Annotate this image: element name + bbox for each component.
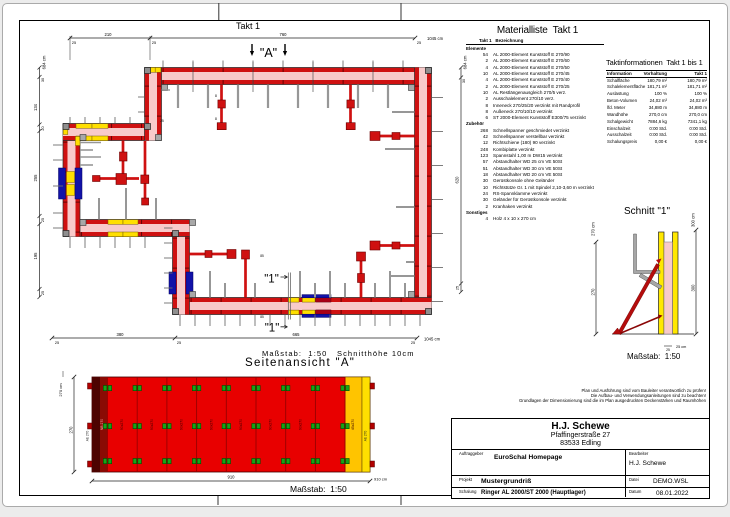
svg-text:195: 195 [33,252,38,260]
svg-text:255: 255 [33,174,38,182]
svg-text:25: 25 [152,41,156,45]
svg-text:90x270: 90x270 [298,419,302,430]
svg-text:270 cm: 270 cm [58,383,63,397]
svg-text:380: 380 [117,332,125,337]
svg-text:25: 25 [456,286,460,290]
svg-text:85: 85 [260,315,264,319]
svg-text:20: 20 [41,126,45,130]
svg-text:"1": "1" [264,274,279,286]
svg-text:"1": "1" [265,323,280,335]
svg-text:90x270: 90x270 [209,419,213,430]
svg-text:665: 665 [293,332,301,337]
svg-text:760: 760 [280,32,288,37]
svg-text:8: 8 [215,117,217,121]
svg-text:25: 25 [177,341,181,345]
svg-text:25: 25 [41,291,45,295]
svg-text:25: 25 [41,218,45,222]
svg-text:"A": "A" [260,46,277,60]
svg-text:45x270: 45x270 [351,419,355,430]
svg-text:AE 270: AE 270 [86,431,90,442]
svg-text:25 cm: 25 cm [676,345,686,349]
svg-text:90x270: 90x270 [180,419,184,430]
svg-text:90x270: 90x270 [239,419,243,430]
svg-text:270: 270 [69,426,74,434]
svg-text:25: 25 [72,41,76,45]
svg-text:25: 25 [417,41,421,45]
svg-text:134: 134 [33,103,38,111]
svg-text:90x270: 90x270 [269,419,273,430]
svg-text:210: 210 [105,32,113,37]
svg-text:85: 85 [260,254,264,258]
svg-text:30: 30 [41,78,45,82]
svg-text:1045 cm: 1045 cm [427,36,444,41]
svg-text:25: 25 [160,119,164,123]
svg-text:25: 25 [55,341,59,345]
svg-text:270: 270 [591,288,596,296]
svg-text:300 cm: 300 cm [691,213,696,227]
svg-text:90x270: 90x270 [120,419,124,430]
svg-text:270 cm: 270 cm [591,222,596,236]
svg-text:620: 620 [455,176,460,184]
svg-text:90x270: 90x270 [150,419,154,430]
svg-text:1045 cm: 1045 cm [424,337,441,342]
svg-text:910: 910 [228,475,236,480]
svg-text:684 cm: 684 cm [42,55,47,69]
svg-text:25: 25 [411,341,415,345]
svg-text:910 cm: 910 cm [374,477,388,482]
svg-text:AE 270: AE 270 [364,431,368,442]
svg-text:300: 300 [691,284,696,292]
svg-text:8: 8 [215,94,217,98]
